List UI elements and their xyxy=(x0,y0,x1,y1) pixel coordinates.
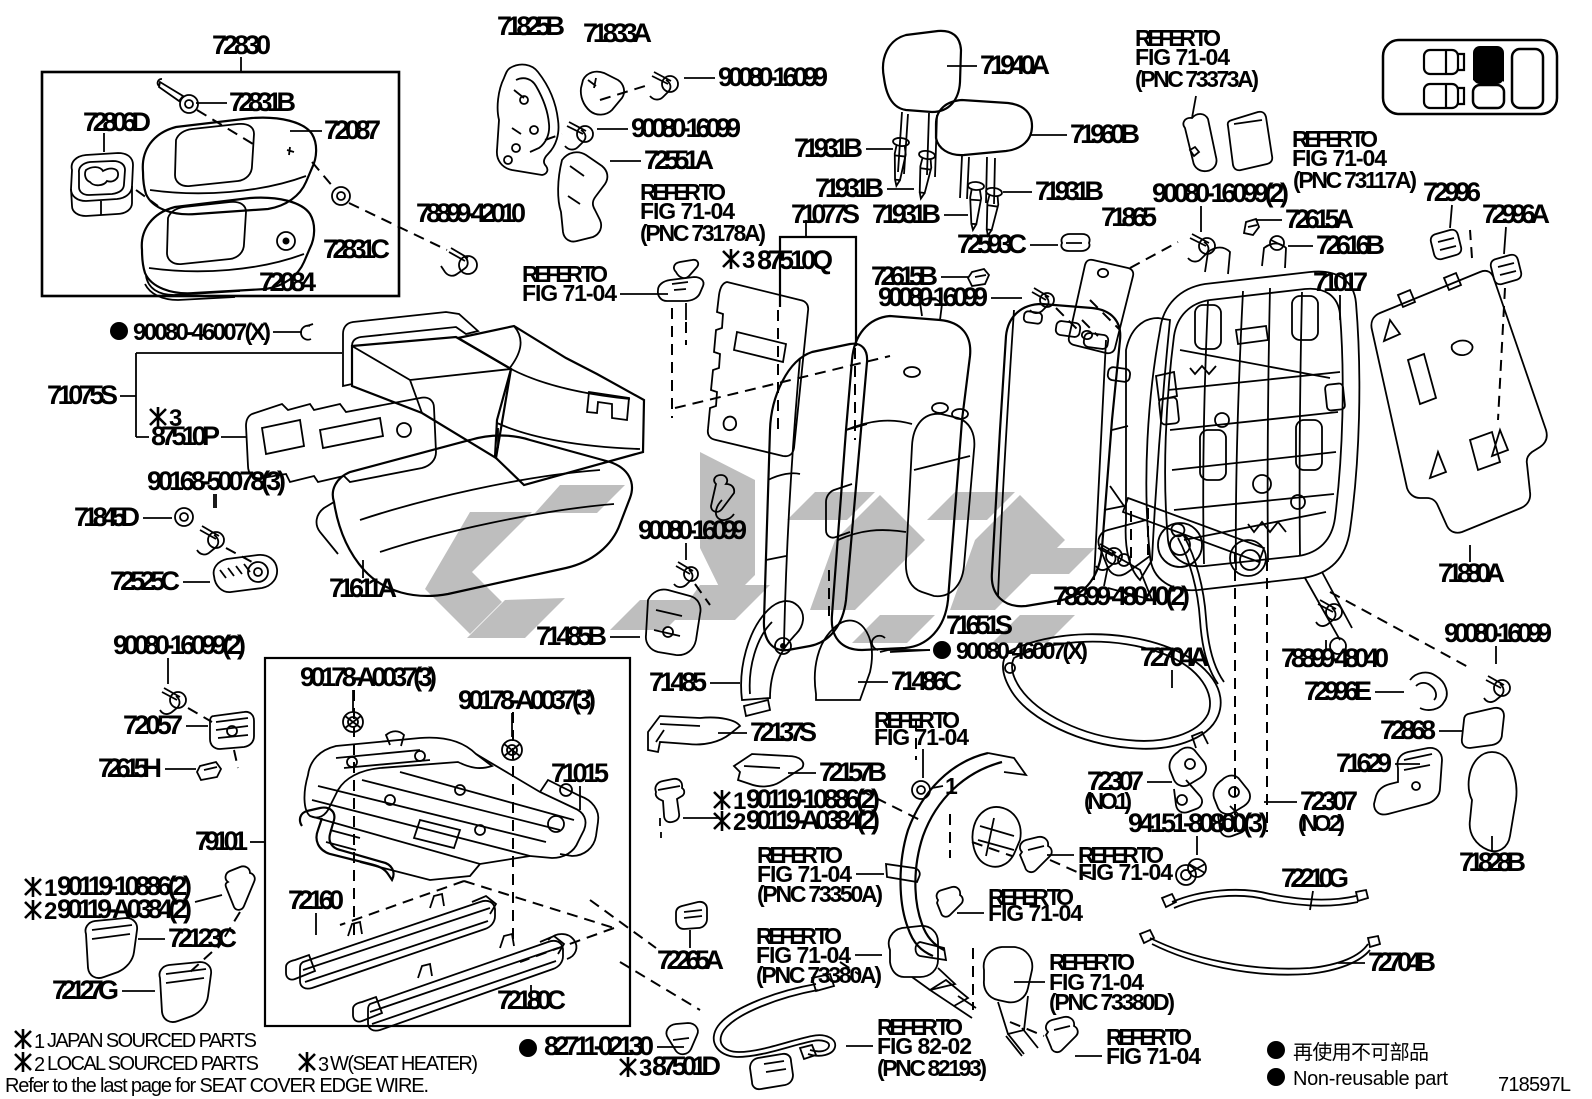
svg-text:72996: 72996 xyxy=(1423,177,1481,207)
svg-text:1: 1 xyxy=(34,1031,45,1053)
svg-text:72830: 72830 xyxy=(212,30,271,60)
svg-text:2: 2 xyxy=(44,898,57,925)
svg-text:71629: 71629 xyxy=(1336,748,1392,778)
svg-text:71931B: 71931B xyxy=(794,133,863,163)
svg-text:90080-16099(2): 90080-16099(2) xyxy=(113,630,246,660)
svg-text:LOCAL SOURCED PARTS: LOCAL SOURCED PARTS xyxy=(47,1053,259,1075)
svg-text:FIG 71-04: FIG 71-04 xyxy=(988,900,1083,926)
svg-text:(PNC 73373A): (PNC 73373A) xyxy=(1135,66,1259,92)
svg-text:71931B: 71931B xyxy=(872,199,941,229)
svg-text:再使用不可部品: 再使用不可部品 xyxy=(1293,1041,1429,1064)
svg-text:71651S: 71651S xyxy=(946,610,1013,640)
svg-text:90080-16099: 90080-16099 xyxy=(638,515,747,545)
svg-text:FIG 71-04: FIG 71-04 xyxy=(874,724,969,750)
svg-text:72615H: 72615H xyxy=(98,753,162,783)
svg-text:Refer to the last page for SEA: Refer to the last page for SEAT COVER ED… xyxy=(5,1075,429,1097)
svg-text:90080-46007(X): 90080-46007(X) xyxy=(133,319,271,346)
svg-text:72806D: 72806D xyxy=(83,107,151,137)
svg-text:2: 2 xyxy=(34,1054,45,1076)
svg-text:72265A: 72265A xyxy=(657,945,724,975)
svg-text:3: 3 xyxy=(318,1054,329,1076)
svg-text:FIG 71-04: FIG 71-04 xyxy=(1106,1043,1201,1069)
svg-text:90119-A0384(2): 90119-A0384(2) xyxy=(746,805,880,835)
svg-text:72210G: 72210G xyxy=(1281,863,1349,893)
svg-text:71077S: 71077S xyxy=(791,199,860,229)
svg-text:71880A: 71880A xyxy=(1438,558,1505,588)
svg-text:72551A: 72551A xyxy=(644,145,714,175)
svg-text:71940A: 71940A xyxy=(980,50,1050,80)
svg-text:72616B: 72616B xyxy=(1316,230,1385,260)
svg-text:90178-A0037(3): 90178-A0037(3) xyxy=(300,662,437,692)
svg-text:72137S: 72137S xyxy=(750,717,817,747)
svg-text:2: 2 xyxy=(733,809,746,836)
svg-text:72996E: 72996E xyxy=(1304,676,1372,706)
svg-text:71485: 71485 xyxy=(649,667,707,697)
svg-text:1: 1 xyxy=(945,773,958,799)
svg-text:(PNC 73117A): (PNC 73117A) xyxy=(1293,167,1417,193)
svg-text:71485B: 71485B xyxy=(536,621,607,651)
svg-text:72525C: 72525C xyxy=(110,566,180,596)
svg-text:(PNC 73380A): (PNC 73380A) xyxy=(756,962,882,988)
svg-text:71015: 71015 xyxy=(551,758,609,788)
svg-text:72087: 72087 xyxy=(324,115,381,145)
svg-text:Non-reusable part: Non-reusable part xyxy=(1293,1068,1448,1090)
svg-text:718597L: 718597L xyxy=(1498,1074,1571,1096)
svg-text:(PNC 73178A): (PNC 73178A) xyxy=(640,220,766,246)
svg-text:72160: 72160 xyxy=(288,885,344,915)
svg-text:90080-16099(2): 90080-16099(2) xyxy=(1152,178,1289,208)
svg-text:72057: 72057 xyxy=(123,710,183,740)
svg-text:71825B: 71825B xyxy=(497,11,565,41)
svg-text:82711-02130: 82711-02130 xyxy=(544,1031,654,1061)
svg-text:87501D: 87501D xyxy=(652,1051,721,1081)
svg-text:72868: 72868 xyxy=(1380,715,1436,745)
svg-text:71865: 71865 xyxy=(1101,202,1157,232)
svg-text:78899-42010: 78899-42010 xyxy=(416,198,526,228)
svg-text:87510Q: 87510Q xyxy=(757,245,833,275)
svg-text:72704B: 72704B xyxy=(1368,947,1436,977)
svg-text:71845D: 71845D xyxy=(74,502,140,532)
svg-text:90080-16099: 90080-16099 xyxy=(718,62,828,92)
svg-text:71833A: 71833A xyxy=(583,18,652,48)
svg-text:3: 3 xyxy=(742,247,755,274)
svg-text:(NO.2): (NO.2) xyxy=(1298,810,1345,836)
svg-text:78899-48040: 78899-48040 xyxy=(1281,643,1389,673)
svg-text:71075S: 71075S xyxy=(47,380,118,410)
svg-text:90080-16099: 90080-16099 xyxy=(1444,618,1552,648)
svg-text:72123C: 72123C xyxy=(168,923,237,953)
svg-text:90119-A0384(2): 90119-A0384(2) xyxy=(57,894,192,924)
svg-text:71486C: 71486C xyxy=(891,666,962,696)
svg-text:72996A: 72996A xyxy=(1482,199,1550,229)
svg-text:FIG 71-04: FIG 71-04 xyxy=(522,280,617,306)
svg-text:90178-A0037(3): 90178-A0037(3) xyxy=(458,685,596,715)
svg-text:(NO.1): (NO.1) xyxy=(1084,788,1132,814)
svg-text:90080-16099: 90080-16099 xyxy=(631,113,741,143)
svg-text:72831C: 72831C xyxy=(323,234,390,264)
svg-text:W(SEAT HEATER): W(SEAT HEATER) xyxy=(330,1053,478,1075)
svg-text:(PNC 73380D): (PNC 73380D) xyxy=(1049,989,1175,1015)
svg-text:72704A: 72704A xyxy=(1140,642,1209,672)
svg-text:(PNC 82193): (PNC 82193) xyxy=(877,1055,987,1081)
svg-text:79101: 79101 xyxy=(195,826,248,856)
svg-text:71931B: 71931B xyxy=(1035,176,1104,206)
svg-text:90168-50078(3): 90168-50078(3) xyxy=(147,466,286,496)
svg-text:71960B: 71960B xyxy=(1070,119,1140,149)
svg-text:72127G: 72127G xyxy=(52,975,119,1005)
svg-text:FIG 71-04: FIG 71-04 xyxy=(1078,859,1173,885)
svg-text:JAPAN SOURCED PARTS: JAPAN SOURCED PARTS xyxy=(47,1030,257,1052)
svg-text:72831B: 72831B xyxy=(229,87,296,117)
svg-text:72593C: 72593C xyxy=(957,229,1027,259)
svg-text:72157B: 72157B xyxy=(819,757,887,787)
svg-text:87510P: 87510P xyxy=(151,421,220,451)
svg-text:3: 3 xyxy=(639,1055,652,1082)
svg-text:94151-80800(3): 94151-80800(3) xyxy=(1128,808,1268,838)
svg-text:(PNC 73350A): (PNC 73350A) xyxy=(757,881,883,907)
